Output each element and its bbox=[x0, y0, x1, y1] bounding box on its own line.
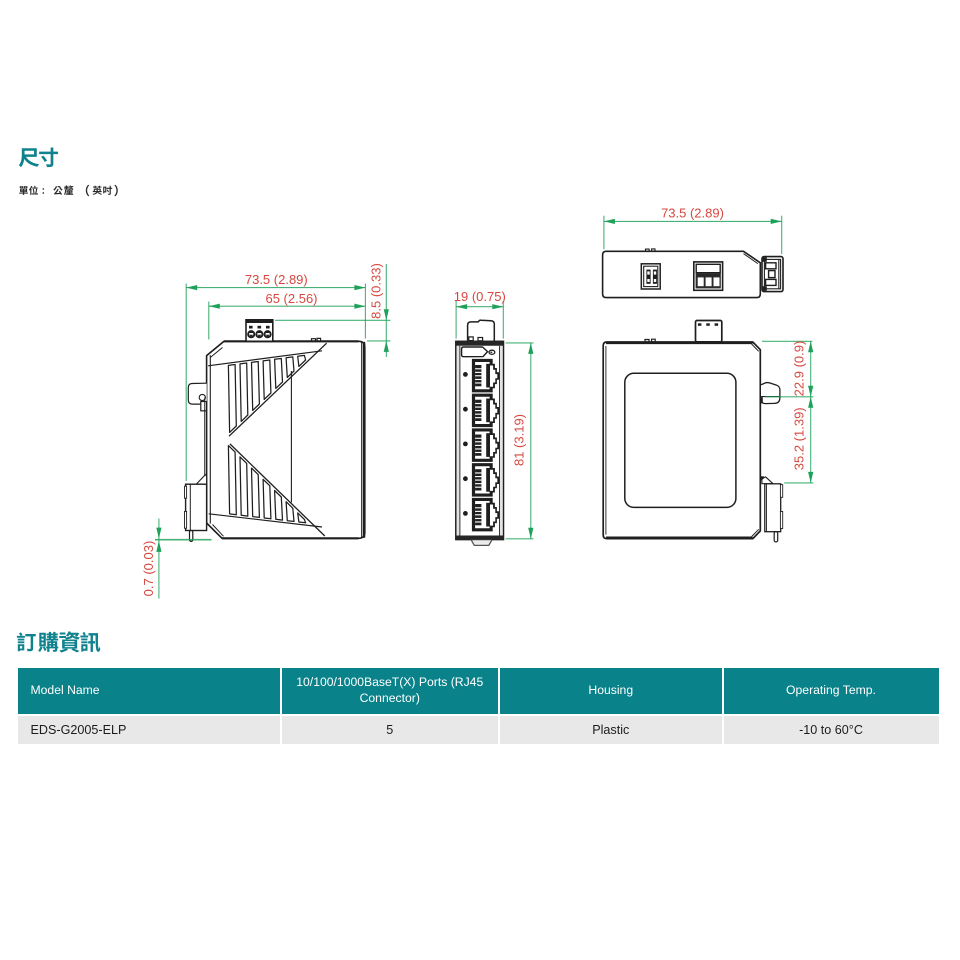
svg-text:0.7 (0.03): 0.7 (0.03) bbox=[141, 541, 156, 597]
svg-text:73.5 (2.89): 73.5 (2.89) bbox=[245, 272, 308, 287]
svg-text:65 (2.56): 65 (2.56) bbox=[265, 291, 317, 306]
svg-text:35.2 (1.39): 35.2 (1.39) bbox=[792, 407, 807, 470]
svg-text:19 (0.75): 19 (0.75) bbox=[454, 289, 506, 304]
svg-text:8.5 (0.33): 8.5 (0.33) bbox=[369, 263, 384, 319]
svg-text:81 (3.19): 81 (3.19) bbox=[512, 414, 527, 466]
svg-text:22.9 (0.9): 22.9 (0.9) bbox=[792, 341, 807, 397]
svg-text:73.5 (2.89): 73.5 (2.89) bbox=[661, 205, 724, 220]
